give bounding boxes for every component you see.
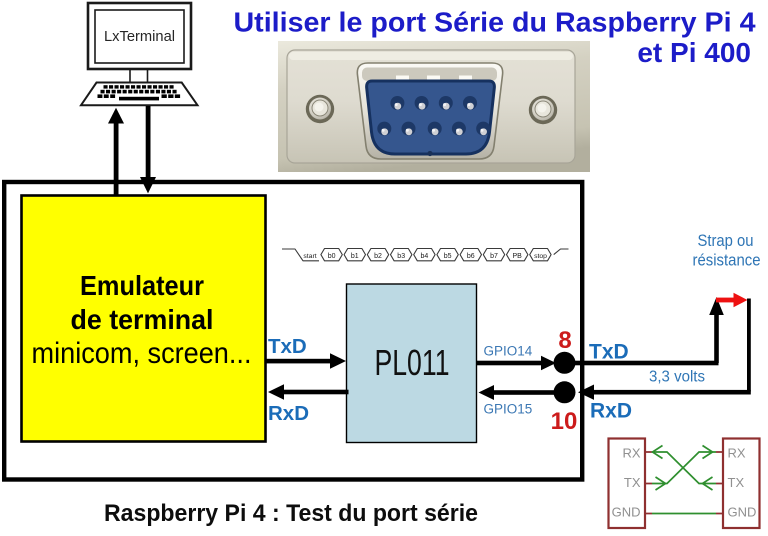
svg-text:TX: TX bbox=[728, 475, 745, 490]
svg-text:résistance: résistance bbox=[693, 251, 761, 270]
svg-text:TX: TX bbox=[624, 475, 641, 490]
svg-text:de terminal: de terminal bbox=[71, 304, 214, 335]
svg-text:TxD: TxD bbox=[268, 335, 307, 358]
svg-text:RxD: RxD bbox=[268, 402, 309, 425]
svg-text:RxD: RxD bbox=[590, 400, 632, 423]
svg-text:10: 10 bbox=[551, 408, 578, 435]
svg-text:start: start bbox=[303, 253, 316, 260]
svg-text:LxTerminal: LxTerminal bbox=[104, 28, 175, 45]
svg-text:Strap ou: Strap ou bbox=[698, 231, 754, 250]
svg-text:8: 8 bbox=[558, 327, 571, 354]
svg-text:GPIO15: GPIO15 bbox=[484, 402, 533, 417]
svg-text:b2: b2 bbox=[374, 253, 382, 260]
svg-text:b0: b0 bbox=[328, 253, 336, 260]
svg-text:Raspberry Pi 4 : Test du port: Raspberry Pi 4 : Test du port série bbox=[104, 500, 478, 527]
svg-text:RX: RX bbox=[622, 446, 640, 461]
svg-text:b7: b7 bbox=[490, 253, 498, 260]
svg-text:b4: b4 bbox=[421, 253, 429, 260]
svg-text:stop: stop bbox=[534, 253, 547, 260]
svg-text:GND: GND bbox=[728, 505, 757, 520]
svg-text:minicom, screen...: minicom, screen... bbox=[32, 337, 252, 370]
svg-text:PB: PB bbox=[513, 253, 523, 260]
svg-text:b5: b5 bbox=[444, 253, 452, 260]
svg-text:b1: b1 bbox=[351, 253, 359, 260]
svg-text:TxD: TxD bbox=[589, 341, 629, 364]
svg-text:Utiliser le port Série du Rasp: Utiliser le port Série du Raspberry Pi 4 bbox=[234, 7, 756, 38]
svg-text:3,3 volts: 3,3 volts bbox=[649, 369, 705, 386]
svg-text:GND: GND bbox=[612, 505, 641, 520]
svg-text:PL011: PL011 bbox=[375, 342, 450, 383]
svg-text:Emulateur: Emulateur bbox=[80, 270, 204, 301]
svg-text:b6: b6 bbox=[467, 253, 475, 260]
svg-text:GPIO14: GPIO14 bbox=[484, 344, 533, 359]
svg-text:RX: RX bbox=[728, 446, 746, 461]
svg-text:b3: b3 bbox=[397, 253, 405, 260]
svg-text:et Pi 400: et Pi 400 bbox=[637, 37, 751, 68]
